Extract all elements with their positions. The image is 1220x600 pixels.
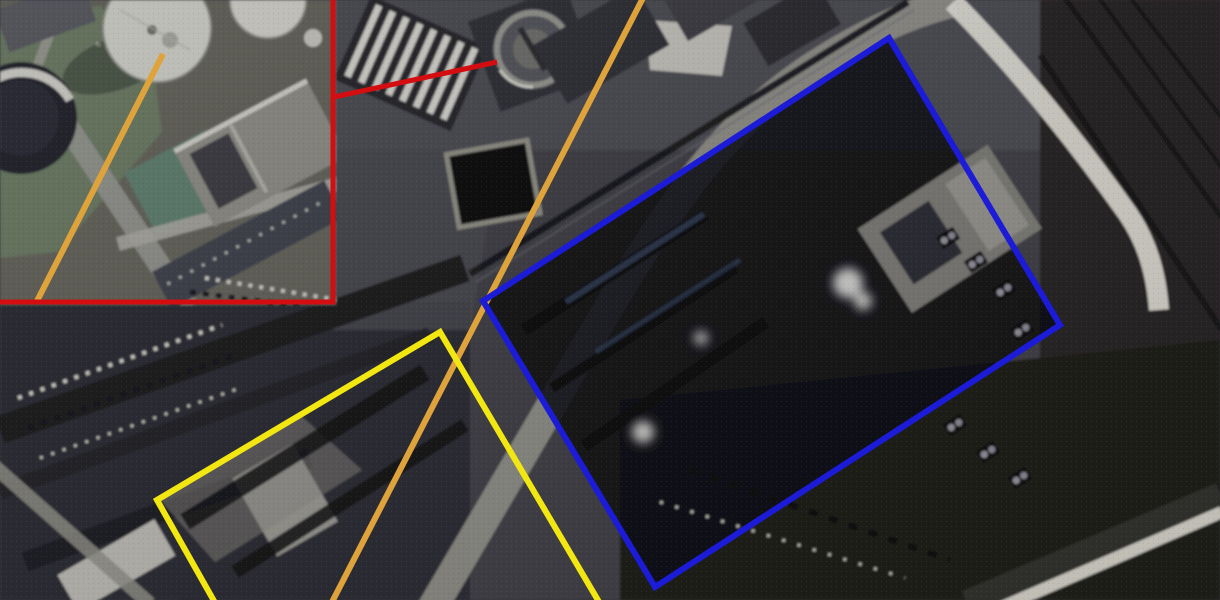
screenshot-root — [0, 0, 1220, 600]
satellite-image — [0, 0, 1220, 600]
